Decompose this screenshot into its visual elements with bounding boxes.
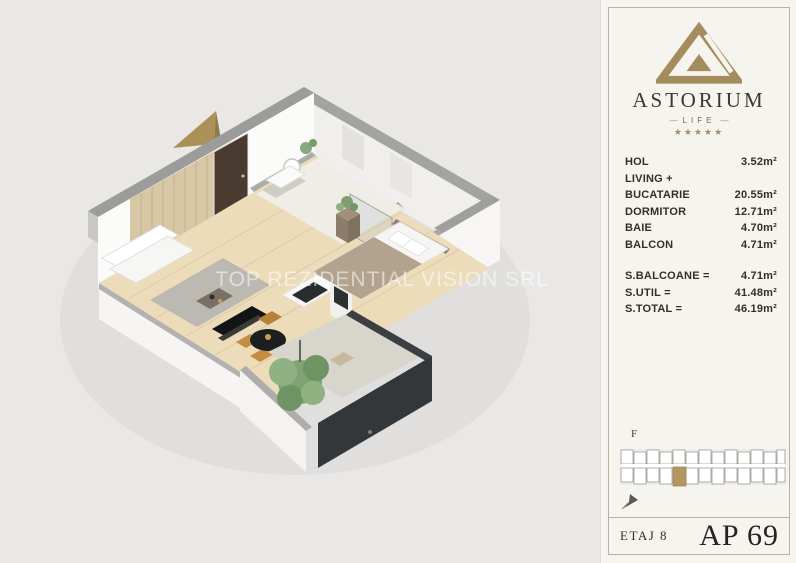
panel-border-frame: ASTORIUM — LIFE — ★★★★★ HOL3.52m² LIVING… (608, 7, 790, 555)
apartment-number: AP 69 (699, 519, 779, 553)
total-area: 46.19m² (735, 301, 777, 318)
total-area: 4.71m² (741, 268, 777, 285)
room-row: BALCON4.71m² (625, 237, 777, 254)
brand-stars: ★★★★★ (609, 127, 789, 138)
room-label: LIVING + (625, 171, 673, 188)
room-label: BAIE (625, 220, 652, 237)
flyer: TOP REZIDENTIAL VISION SRL ASTORIUM — LI… (0, 0, 796, 563)
room-label: HOL (625, 154, 649, 171)
room-row: BUCATARIE20.55m² (625, 187, 777, 204)
room-label: BUCATARIE (625, 187, 690, 204)
total-row: S.TOTAL =46.19m² (625, 301, 777, 318)
total-area: 41.48m² (735, 285, 777, 302)
room-row: BAIE4.70m² (625, 220, 777, 237)
room-area: 4.70m² (741, 220, 777, 237)
room-label: BALCON (625, 237, 673, 254)
room-area: 4.71m² (741, 237, 777, 254)
tagline-dash: — (670, 116, 678, 125)
floorplan-canvas: TOP REZIDENTIAL VISION SRL (0, 0, 600, 563)
room-row: DORMITOR12.71m² (625, 204, 777, 221)
room-area: 12.71m² (735, 204, 777, 221)
compass-icon (621, 492, 643, 510)
room-list: HOL3.52m² LIVING + BUCATARIE20.55m² DORM… (609, 154, 789, 253)
floorplan-3d-render: TOP REZIDENTIAL VISION SRL (0, 0, 600, 563)
total-row: S.BALCOANE =4.71m² (625, 268, 777, 285)
brand-name: ASTORIUM (609, 88, 789, 113)
total-label: S.TOTAL = (625, 301, 682, 318)
room-area: 3.52m² (741, 154, 777, 171)
brand-tagline: — LIFE — (609, 116, 789, 125)
room-area: 20.55m² (735, 187, 777, 204)
panel-footer: ETAJ 8 AP 69 (609, 517, 789, 554)
building-floor-strip (619, 444, 787, 490)
floor-label: ETAJ 8 (620, 528, 668, 544)
highlighted-apartment-unit (673, 467, 686, 486)
room-label: DORMITOR (625, 204, 686, 221)
room-row: HOL3.52m² (625, 154, 777, 171)
room-row: LIVING + (625, 171, 777, 188)
corridor (621, 464, 785, 468)
brand-block: ASTORIUM — LIFE — ★★★★★ (609, 8, 789, 138)
building-locator: F (609, 428, 789, 510)
total-label: S.UTIL = (625, 285, 671, 302)
totals-list: S.BALCOANE =4.71m² S.UTIL =41.48m² S.TOT… (609, 268, 789, 318)
astorium-logo-icon (656, 22, 742, 84)
tagline-text: LIFE (683, 116, 716, 125)
total-row: S.UTIL =41.48m² (625, 285, 777, 302)
info-panel: ASTORIUM — LIFE — ★★★★★ HOL3.52m² LIVING… (600, 0, 796, 563)
floor-letter: F (631, 428, 779, 440)
tagline-dash: — (720, 116, 728, 125)
total-label: S.BALCOANE = (625, 268, 710, 285)
watermark-text: TOP REZIDENTIAL VISION SRL (215, 268, 549, 291)
